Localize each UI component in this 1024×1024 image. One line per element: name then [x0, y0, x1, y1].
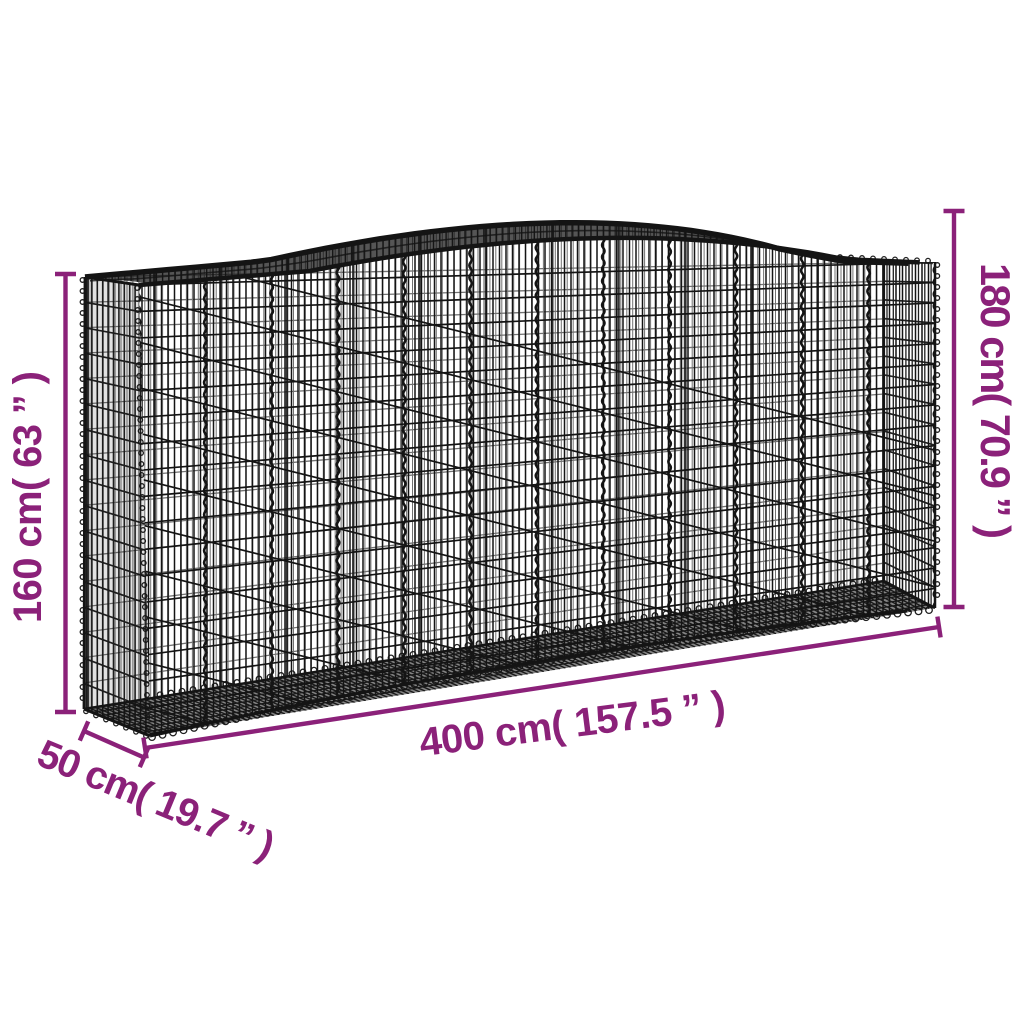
svg-text:160 cm( 63 ” ): 160 cm( 63 ” ): [6, 371, 50, 623]
svg-text:180 cm( 70.9 ” ): 180 cm( 70.9 ” ): [972, 263, 1019, 539]
